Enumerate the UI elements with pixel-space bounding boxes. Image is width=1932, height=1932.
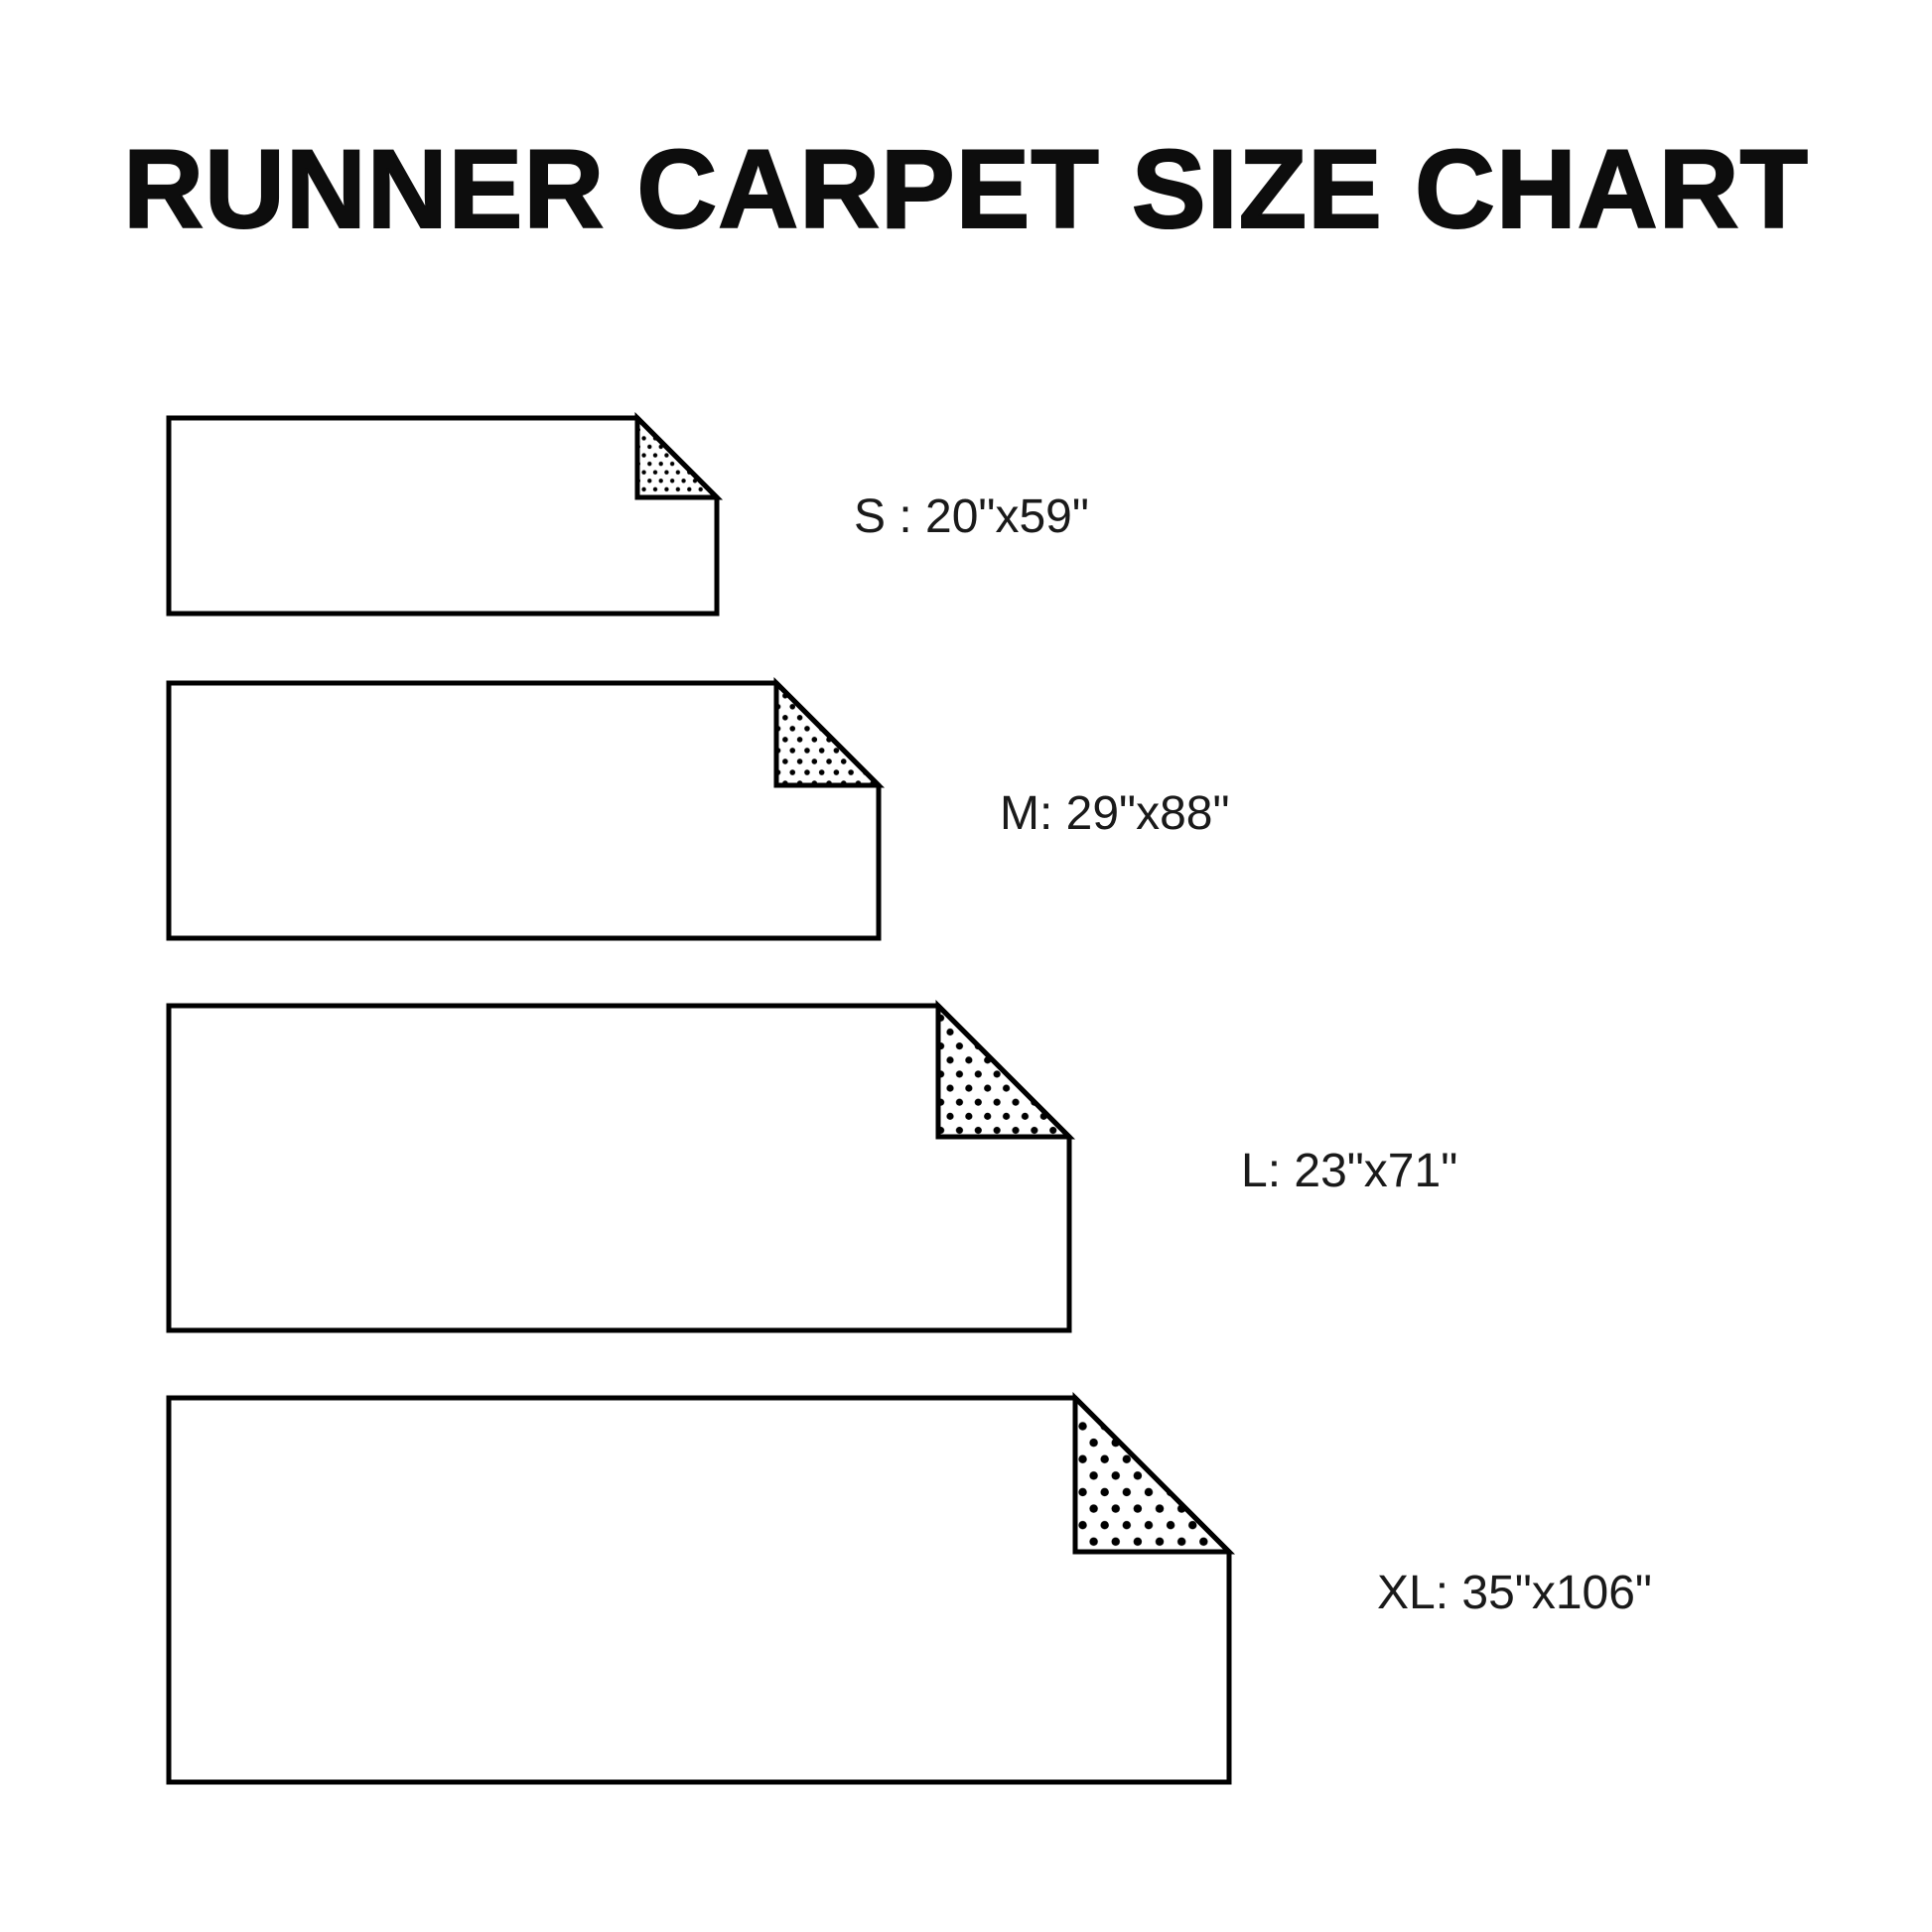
carpet-outline-s [169,418,717,614]
size-label-l: L: 23"x71" [1241,1148,1457,1195]
carpet-outline-m [169,683,879,938]
fold-flap-xl [1075,1398,1229,1552]
carpet-outline-xl [169,1398,1229,1782]
carpet-m [169,683,879,938]
carpet-s [169,418,717,614]
fold-flap-l [938,1006,1069,1137]
carpet-xl [169,1398,1229,1782]
carpet-diagram [0,0,1932,1932]
size-chart-page: RUNNER CARPET SIZE CHART S : 20"x59" M: … [0,0,1932,1932]
size-label-s: S : 20"x59" [854,493,1089,541]
size-label-m: M: 29"x88" [1000,790,1230,838]
fold-flap-s [637,418,717,497]
carpet-l [169,1006,1069,1330]
carpet-outline-l [169,1006,1069,1330]
fold-flap-m [776,683,879,785]
size-label-xl: XL: 35"x106" [1377,1570,1652,1617]
